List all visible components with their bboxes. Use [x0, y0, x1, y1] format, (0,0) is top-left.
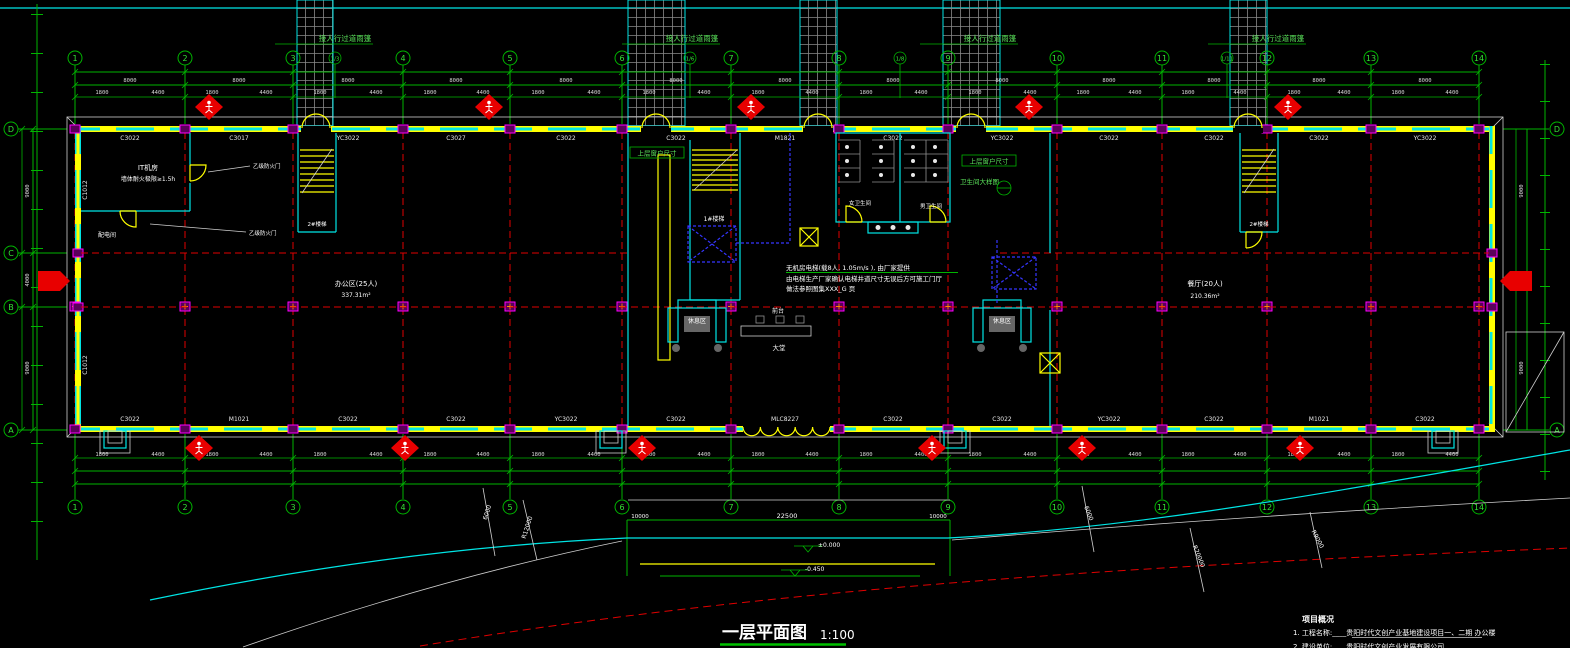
project-notes: 项目概况 1. 工程名称:____贵阳时代文创产业基地建设项目一、二期 办公楼 …	[1293, 614, 1496, 648]
window-code: C3022	[1204, 135, 1224, 142]
entrance-marker-icon	[475, 94, 503, 120]
column	[1366, 425, 1376, 433]
dim-text: 1800	[313, 452, 326, 458]
dim-text: 1800	[1181, 90, 1194, 96]
column	[726, 425, 736, 433]
dim-text: 8000	[559, 78, 572, 84]
svg-text:5: 5	[507, 54, 512, 63]
shaft-box	[800, 228, 818, 246]
grid-axis-vertical: 13	[1364, 51, 1378, 425]
column	[70, 125, 80, 133]
dim-text: 8000	[1418, 78, 1431, 84]
svg-text:A: A	[1554, 426, 1560, 435]
fire-door-label: 乙级防火门	[253, 162, 281, 170]
dim-text: 1800	[95, 90, 108, 96]
window-code-rotated: C1012	[82, 355, 89, 375]
dim-text: 8000	[341, 78, 354, 84]
dim-text: 4400	[1023, 452, 1036, 458]
window-code: C3022	[1309, 135, 1329, 142]
grid-axis-bottom-bubble: 13	[1364, 434, 1378, 514]
left-bay-dims: 9000 4000 9000	[25, 184, 31, 374]
room-label-lobby: 大堂	[773, 343, 787, 352]
column	[505, 425, 515, 433]
svg-text:办公区(25人): 办公区(25人)	[335, 279, 378, 288]
dim-text: 8000	[669, 78, 682, 84]
left-wall-codes: C1012 C1012	[82, 180, 89, 375]
svg-text:3: 3	[290, 54, 295, 63]
column	[943, 125, 953, 133]
grid-axis-right: A	[1503, 423, 1564, 437]
svg-text:13: 13	[1366, 54, 1376, 63]
section-arrow-left	[38, 271, 70, 291]
svg-text:做法参照图集XXX_G 页: 做法参照图集XXX_G 页	[786, 284, 856, 293]
entry-markers-bottom	[185, 435, 1314, 461]
window-code: YC3022	[1097, 416, 1121, 423]
dim-text-rotated: 9000	[25, 361, 31, 374]
dim-text: 1800	[313, 90, 326, 96]
dim-text: 1800	[423, 452, 436, 458]
window-code: C3022	[446, 416, 466, 423]
dim-text: 8000	[1312, 78, 1325, 84]
grid-axis-minor-group: 1/3 1/6 1/8 1/11	[329, 52, 1233, 98]
elevator-note: 无机房电梯(载8人, 1.05m/s ), 由厂家提供 由电梯生产厂家确认电梯井…	[786, 263, 958, 293]
svg-text:9000: 9000	[25, 184, 31, 197]
svg-text:14: 14	[1474, 54, 1484, 63]
window-code: C3022	[1415, 416, 1435, 423]
notes-line1: 1. 工程名称:____贵阳时代文创产业基地建设项目一、二期 办公楼	[1293, 628, 1496, 637]
window-code: C3022	[883, 416, 903, 423]
dim-text: 4400	[369, 90, 382, 96]
svg-text:9: 9	[945, 54, 950, 63]
dim-text: 8000	[886, 78, 899, 84]
walkway-hatch	[800, 0, 837, 126]
fire-door-label: 乙级防火门	[249, 229, 277, 237]
entrance-marker-icon	[1068, 435, 1096, 461]
svg-text:3: 3	[290, 503, 295, 512]
canopy-label: 接人行过道雨篷	[275, 33, 373, 44]
svg-text:1: 1	[72, 503, 77, 512]
elevator-shaft-left	[688, 133, 790, 262]
dim-text: 4400	[259, 90, 272, 96]
svg-text:接人行过道雨篷: 接人行过道雨篷	[964, 33, 1017, 43]
dim-text: 1800	[751, 452, 764, 458]
road-dim-text: R9000	[1310, 529, 1325, 550]
svg-text:B: B	[8, 303, 14, 312]
window-code: C3022	[120, 135, 140, 142]
dim-text: 4400	[805, 90, 818, 96]
road-dim-text: R20000	[1191, 544, 1206, 568]
dim-text: 8000	[778, 78, 791, 84]
window-code: M1021	[229, 416, 250, 423]
grid-axis-horizontal: D	[4, 122, 67, 136]
grid-axis-vertical: 4	[396, 51, 410, 425]
window-code: C3022	[666, 416, 686, 423]
column	[1474, 425, 1484, 433]
svg-text:9000: 9000	[25, 361, 31, 374]
bottom-wall-codes: C3022M1021C3022C3022YC3022C3022MLC8227C3…	[120, 416, 1435, 423]
window-code: C3022	[1204, 416, 1224, 423]
svg-text:卫生间大样图: 卫生间大样图	[960, 177, 999, 186]
dim-text: 4400	[697, 90, 710, 96]
dim-text: 4400	[151, 452, 164, 458]
svg-text:8: 8	[836, 54, 841, 63]
svg-text:7: 7	[728, 503, 733, 512]
svg-text:餐厅(20人): 餐厅(20人)	[1187, 279, 1223, 288]
grid-axis-vertical: 2	[178, 51, 192, 425]
window-code: C3022	[120, 416, 140, 423]
window-code: C3022	[666, 135, 686, 142]
wc-detail-tag: 卫生间大样图	[960, 177, 1011, 195]
walkway-hatch	[628, 0, 685, 126]
svg-text:1/11: 1/11	[1221, 57, 1233, 63]
window-code: C3022	[338, 416, 358, 423]
dim-text: 1800	[531, 452, 544, 458]
svg-text:2: 2	[182, 54, 187, 63]
svg-text:1/6: 1/6	[686, 57, 695, 63]
dim-text: 1800	[531, 90, 544, 96]
svg-text:6: 6	[619, 503, 624, 512]
dim-text: 1800	[1181, 452, 1194, 458]
room-label-desk: 前台	[772, 307, 784, 315]
dim-text: 8000	[449, 78, 462, 84]
dim-text: 4400	[476, 452, 489, 458]
window-code: YC3022	[554, 416, 578, 423]
column	[1474, 125, 1484, 133]
dim-text: 4400	[1128, 452, 1141, 458]
grid-axis-bottom-bubble: 5	[503, 434, 517, 514]
dim-text: 1800	[1391, 90, 1404, 96]
grid-axis-vertical: 14	[1472, 51, 1486, 425]
stair-2-right: 2#楼梯	[1240, 133, 1278, 248]
entrance-marker-icon	[195, 94, 223, 120]
svg-text:11: 11	[1157, 503, 1167, 512]
notes-line2: 2. 建设单位:____贵阳时代文创产业发展有限公司	[1293, 642, 1444, 648]
dim-text: 4400	[805, 452, 818, 458]
grid-axis-vertical: 10	[1050, 51, 1064, 425]
right-ramp	[1506, 332, 1564, 432]
it-room: IT机房 墙体耐火极限≥1.5h 乙级防火门	[81, 133, 281, 211]
grid-axis-bottom-bubble: 14	[1472, 434, 1486, 514]
building-outline	[67, 117, 1503, 437]
grid-axis-right: D	[1503, 122, 1564, 136]
grid-bubble-bottom-group: 1 2 3 4 5 6	[68, 434, 1486, 514]
main-entrance: ±0.000 -0.450 22500 10000 10000	[627, 427, 950, 576]
svg-text:12: 12	[1262, 54, 1272, 63]
svg-text:11: 11	[1157, 54, 1167, 63]
upper-window-tag-2: 上层窗户尺寸	[962, 155, 1016, 166]
svg-text:2: 2	[182, 503, 187, 512]
svg-text:1/8: 1/8	[896, 57, 905, 63]
room-label-wc-men: 男卫生间	[920, 202, 942, 210]
site-roads	[150, 450, 1570, 647]
column	[70, 425, 80, 433]
column	[180, 125, 190, 133]
svg-text:1: 1	[72, 54, 77, 63]
dim-text: 1800	[968, 90, 981, 96]
exterior-walls	[75, 126, 1495, 433]
bottom-sub-dims: 1800440018004400180044001800440018004400…	[95, 452, 1458, 458]
window-code: MLC8227	[771, 416, 799, 423]
svg-text:5: 5	[507, 503, 512, 512]
dim-text: 8000	[1207, 78, 1220, 84]
grid-axis-bottom-bubble: 1	[68, 434, 82, 514]
grid-axis-vertical: 6	[615, 51, 629, 425]
entrance-dim: 22500	[777, 512, 798, 520]
dim-text: 8000	[1102, 78, 1115, 84]
grid-axis-top-group: 1 2 3 4 5	[68, 51, 1486, 425]
svg-text:4: 4	[400, 54, 405, 63]
dim-text: 4400	[1337, 452, 1350, 458]
svg-text:4: 4	[400, 503, 405, 512]
grid-axis-vertical: 11	[1155, 51, 1169, 425]
room-label-stair2: 2#楼梯	[307, 220, 327, 228]
svg-text:14: 14	[1474, 503, 1484, 512]
column	[617, 125, 627, 133]
office-room-label: 办公区(25人) 337.31m²	[335, 279, 378, 299]
svg-text:9: 9	[945, 503, 950, 512]
column	[505, 125, 515, 133]
title-text: 一层平面图	[722, 623, 807, 643]
column	[1157, 125, 1167, 133]
svg-text:无机房电梯(载8人, 1.05m/s ), 由厂家提供: 无机房电梯(载8人, 1.05m/s ), 由厂家提供	[786, 263, 910, 272]
dim-text: 8000	[123, 78, 136, 84]
room-label-stair1: 1#楼梯	[704, 215, 725, 223]
window-code: YC3022	[990, 135, 1014, 142]
room-note-fire: 墙体耐火极限≥1.5h	[121, 175, 176, 183]
svg-text:10: 10	[1052, 503, 1062, 512]
dim-text: 4400	[259, 452, 272, 458]
column	[398, 425, 408, 433]
dim-text: 4400	[1445, 90, 1458, 96]
dim-text: 4400	[1233, 452, 1246, 458]
section-arrow-right	[1500, 271, 1532, 291]
wall-columns-sides	[73, 249, 1497, 311]
dim-text: 8000	[232, 78, 245, 84]
dim-text-rotated: 4000	[25, 273, 31, 286]
dim-text: 1800	[1391, 452, 1404, 458]
grid-axis-bottom-bubble: 11	[1155, 434, 1169, 514]
svg-text:D: D	[1554, 125, 1560, 134]
svg-text:C1012: C1012	[82, 180, 89, 200]
svg-text:210.36m²: 210.36m²	[1190, 293, 1220, 300]
window-code-rotated: C1012	[82, 180, 89, 200]
room-label-stair2: 2#楼梯	[1249, 220, 1269, 228]
dim-text: 4400	[476, 90, 489, 96]
column	[398, 125, 408, 133]
dining-room-label: 餐厅(20人) 210.36m²	[1187, 279, 1223, 300]
dim-text: 1800	[859, 452, 872, 458]
room-label-lounge: 休息区	[993, 317, 1011, 325]
dim-text: 1800	[1076, 90, 1089, 96]
svg-text:A: A	[8, 426, 14, 435]
entry-markers-top	[195, 94, 1302, 120]
dim-text-rotated: 9000	[1519, 184, 1525, 197]
dim-text-rotated: 9000	[25, 184, 31, 197]
window-code: C3022	[992, 416, 1012, 423]
column	[1157, 425, 1167, 433]
svg-text:接人行过道雨篷: 接人行过道雨篷	[1252, 33, 1305, 43]
grid-axis-minor: 1/6	[684, 52, 696, 98]
canopy-label: 接人行过道雨篷	[1208, 33, 1306, 44]
dim-text: 1800	[423, 90, 436, 96]
window-code: C3027	[446, 135, 466, 142]
drawing-title: 一层平面图 1:100	[720, 623, 855, 645]
dim-text: 4400	[1337, 90, 1350, 96]
svg-text:接人行过道雨篷: 接人行过道雨篷	[319, 33, 372, 43]
grid-axis-vertical: 5	[503, 51, 517, 425]
entrance-dim: 10000	[631, 514, 649, 520]
entrance-marker-icon	[1015, 94, 1043, 120]
dim-text: 4400	[697, 452, 710, 458]
power-room: 配电间 乙级防火门	[98, 211, 277, 239]
column	[1052, 425, 1062, 433]
svg-text:337.31m²: 337.31m²	[341, 292, 371, 299]
dim-text: 1800	[642, 90, 655, 96]
room-label-lounge: 休息区	[688, 317, 706, 325]
walkway-hatch	[943, 0, 1000, 126]
column	[834, 125, 844, 133]
top-dimension-band	[75, 72, 1479, 97]
dim-text: 8000	[995, 78, 1008, 84]
dim-text: 4400	[369, 452, 382, 458]
grid-axis-bottom-bubble: 7	[724, 434, 738, 514]
canopy-label-group: 接人行过道雨篷 接人行过道雨篷 接人行过道雨篷 接人行过道雨篷	[275, 33, 1306, 44]
svg-text:7: 7	[728, 54, 733, 63]
level-text: ±0.000	[818, 542, 840, 549]
window-code: C3022	[556, 135, 576, 142]
room-label-power: 配电间	[98, 231, 116, 239]
road-dim-text: R12000	[521, 515, 535, 539]
svg-text:6: 6	[619, 54, 624, 63]
grid-axis-bottom-bubble: 8	[832, 434, 846, 514]
grid-axis-minor: 1/8	[894, 52, 906, 98]
dim-text: 1800	[1287, 90, 1300, 96]
window-code: M1021	[1309, 416, 1330, 423]
svg-text:13: 13	[1366, 503, 1376, 512]
column	[180, 425, 190, 433]
window-code: C3022	[1099, 135, 1119, 142]
dim-text-rotated: 9000	[1519, 361, 1525, 374]
bottom-dimension-band	[75, 458, 1479, 484]
column	[1262, 125, 1272, 133]
svg-text:C1012: C1012	[82, 355, 89, 375]
svg-text:9000: 9000	[1519, 184, 1525, 197]
svg-text:1/3: 1/3	[331, 57, 340, 63]
title-scale: 1:100	[820, 628, 855, 642]
top-wall-codes: C3022C3017YC3022C3027C3022C3022M1821C302…	[120, 135, 1436, 142]
dim-text: 1800	[859, 90, 872, 96]
svg-text:12: 12	[1262, 503, 1272, 512]
walkway-hatch	[297, 0, 333, 126]
stair-2-left: 2#楼梯	[298, 133, 336, 232]
svg-text:上层窗户尺寸: 上层窗户尺寸	[638, 149, 678, 158]
notes-heading: 项目概况	[1302, 614, 1334, 624]
grid-axis-bottom-bubble: 3	[286, 434, 300, 514]
window-code: M1821	[775, 135, 796, 142]
dim-text: 4400	[1128, 90, 1141, 96]
cad-drawing-viewport: 接人行过道雨篷 接人行过道雨篷 接人行过道雨篷 接人行过道雨篷 1 2	[0, 0, 1570, 648]
dim-text: 1800	[751, 90, 764, 96]
road-dim-group: 6000R120006000R20000R9000	[482, 504, 1325, 569]
dim-text: 4400	[1233, 90, 1246, 96]
entrance-marker-icon	[1274, 94, 1302, 120]
svg-text:接人行过道雨篷: 接人行过道雨篷	[666, 33, 719, 43]
grid-axis-horizontal: A	[4, 423, 67, 437]
svg-text:10: 10	[1052, 54, 1062, 63]
dim-text: 4400	[914, 90, 927, 96]
grid-axis-horizontal: B	[4, 300, 67, 314]
column	[288, 125, 298, 133]
dim-text: 4400	[151, 90, 164, 96]
column	[1262, 425, 1272, 433]
column	[288, 425, 298, 433]
svg-text:C: C	[8, 249, 14, 258]
dim-text: 4400	[587, 90, 600, 96]
entrance-marker-icon	[391, 435, 419, 461]
svg-text:4000: 4000	[25, 273, 31, 286]
window-code: C3017	[229, 135, 249, 142]
room-label-wc-women: 女卫生间	[849, 199, 871, 207]
svg-text:9000: 9000	[1519, 361, 1525, 374]
column	[1052, 125, 1062, 133]
room-label-it: IT机房	[138, 163, 158, 172]
svg-text:D: D	[8, 125, 14, 134]
dim-text: 1800	[205, 90, 218, 96]
road-dim-text: 6000	[1082, 505, 1094, 522]
svg-text:8: 8	[836, 503, 841, 512]
entrance-dim: 10000	[929, 514, 947, 520]
floor-plan-canvas: 接人行过道雨篷 接人行过道雨篷 接人行过道雨篷 接人行过道雨篷 1 2	[0, 0, 1570, 648]
toilet-block: 女卫生间 男卫生间	[836, 133, 950, 233]
canopy-label: 接人行过道雨篷	[920, 33, 1018, 44]
road-dim-text: 6000	[482, 504, 493, 521]
column	[1366, 125, 1376, 133]
entrance-marker-icon	[737, 94, 765, 120]
level-text: -0.450	[805, 566, 825, 573]
column	[834, 425, 844, 433]
window-code: YC3022	[336, 135, 360, 142]
svg-text:由电梯生产厂家确认电梯井道尺寸无误后方可施工门厅: 由电梯生产厂家确认电梯井道尺寸无误后方可施工门厅	[786, 274, 943, 283]
walkway-hatch-group	[297, 0, 1267, 126]
window-code: YC3022	[1413, 135, 1437, 142]
svg-text:上层窗户尺寸: 上层窗户尺寸	[970, 157, 1010, 166]
column	[726, 125, 736, 133]
grid-axis-bottom-bubble: 10	[1050, 434, 1064, 514]
upper-window-tag-1: 上层窗户尺寸	[630, 147, 684, 158]
